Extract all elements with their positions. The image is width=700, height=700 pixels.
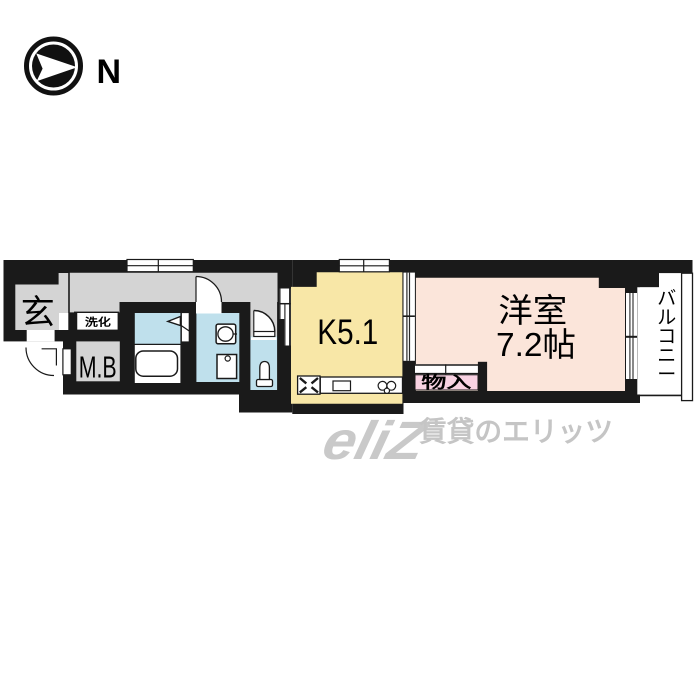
- svg-text:eliZ: eliZ: [317, 410, 435, 471]
- svg-text:洗化: 洗化: [85, 316, 112, 329]
- svg-text:ル: ル: [657, 308, 676, 329]
- svg-text:洋室: 洋室: [498, 292, 567, 329]
- svg-text:物入: 物入: [421, 372, 471, 391]
- svg-text:K5.1: K5.1: [317, 313, 378, 352]
- svg-text:ー: ー: [657, 365, 676, 386]
- svg-text:N: N: [97, 53, 122, 91]
- svg-text:7.2帖: 7.2帖: [496, 326, 576, 363]
- svg-text:玄: 玄: [21, 294, 55, 332]
- svg-text:コ: コ: [657, 327, 676, 348]
- svg-text:賃貸のエリッツ: 賃貸のエリッツ: [418, 416, 613, 447]
- svg-text:バ: バ: [657, 289, 676, 310]
- svg-text:M.B: M.B: [79, 350, 117, 385]
- svg-text:ニ: ニ: [657, 346, 676, 367]
